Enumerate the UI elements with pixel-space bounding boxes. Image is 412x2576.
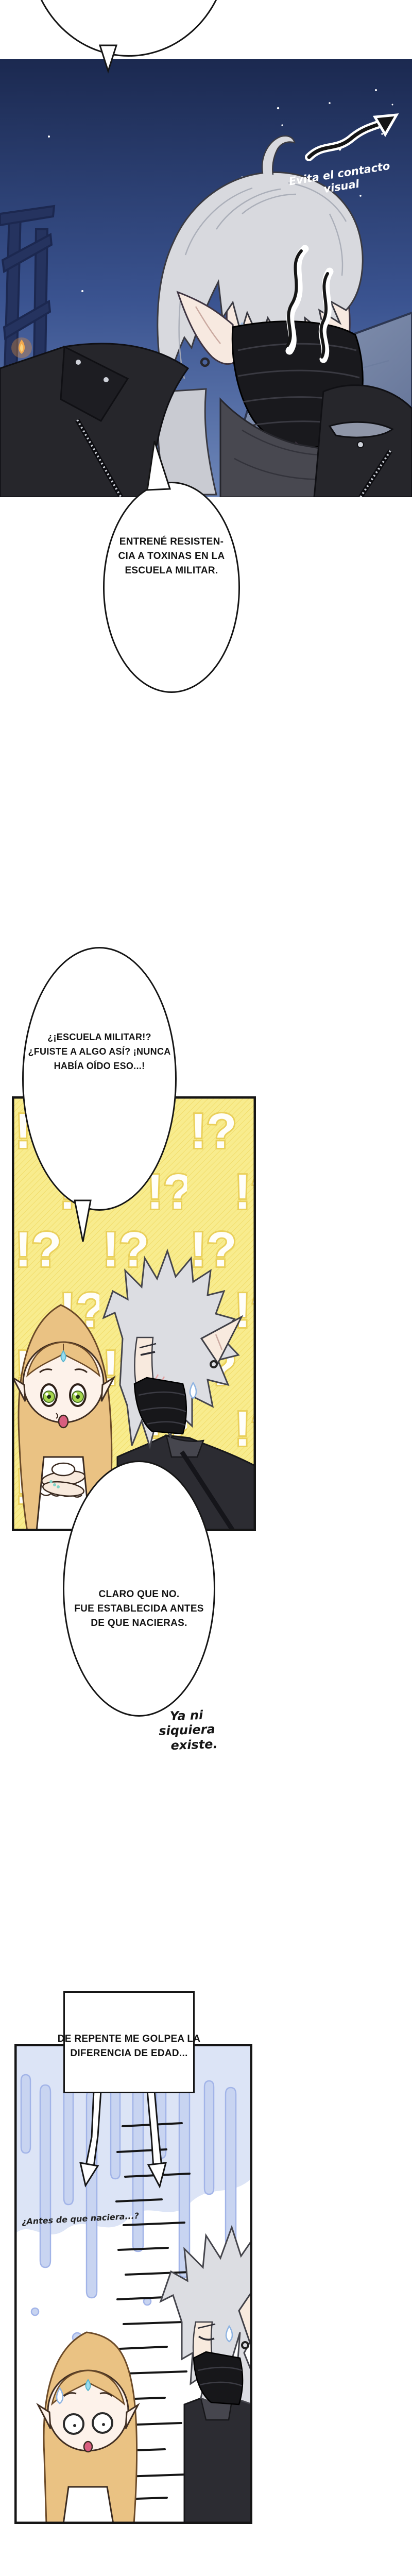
bubble-text: CLARO QUE NO. xyxy=(99,1587,180,1602)
torch-flame xyxy=(11,337,32,358)
speech-bubble-2: ¿¡ESCUELA MILITAR!? ¿FUISTE A ALGO ASÍ? … xyxy=(22,947,177,1211)
panel-blue-drips xyxy=(14,2044,252,2524)
narration-caption-box: DE REPENTE ME GOLPEA LA DIFERENCIA DE ED… xyxy=(63,1991,195,2093)
bubble-text: CIA A TOXINAS EN LA xyxy=(118,549,225,564)
caption-text: DIFERENCIA DE EDAD... xyxy=(70,2046,187,2061)
caption-arrow-left xyxy=(71,2090,108,2196)
note-line: Ya ni siquiera xyxy=(148,1707,226,1739)
speech-bubble-1: ENTRENÉ RESISTEN- CIA A TOXINAS EN LA ES… xyxy=(103,482,240,693)
speech-bubble-3: CLARO QUE NO. FUE ESTABLECIDA ANTES DE Q… xyxy=(63,1461,215,1717)
bubble-text: FUE ESTABLECIDA ANTES xyxy=(74,1602,204,1616)
note-line: existe. xyxy=(149,1736,227,1754)
jacket-right xyxy=(314,385,412,497)
caption-text: DE REPENTE ME GOLPEA LA xyxy=(58,2032,201,2046)
bubble-text: ¿¡ESCUELA MILITAR!? xyxy=(47,1030,151,1044)
bubble-text: ENTRENÉ RESISTEN- xyxy=(119,535,224,549)
panel-night-scene xyxy=(0,59,412,497)
caption-arrow-right xyxy=(138,2090,175,2198)
bubble-tail xyxy=(97,47,119,73)
bubble-text: HABÍA OÍDO ESO...! xyxy=(54,1059,145,1073)
bubble-tail-spike xyxy=(71,1202,96,1244)
webtoon-page: Evita el contacto visual ENTRENÉ RESISTE… xyxy=(0,0,412,2576)
bubble-text: ESCUELA MILITAR. xyxy=(125,564,218,578)
handwritten-note-ya-ni: Ya ni siquiera existe. xyxy=(148,1707,227,1753)
bubble-text: DE QUE NACIERAS. xyxy=(91,1616,187,1631)
bubble-text: ¿FUISTE A ALGO ASÍ? ¡NUNCA xyxy=(28,1044,170,1059)
speech-bubble-partial-top xyxy=(28,0,229,57)
bubble-tail-up xyxy=(146,439,177,488)
